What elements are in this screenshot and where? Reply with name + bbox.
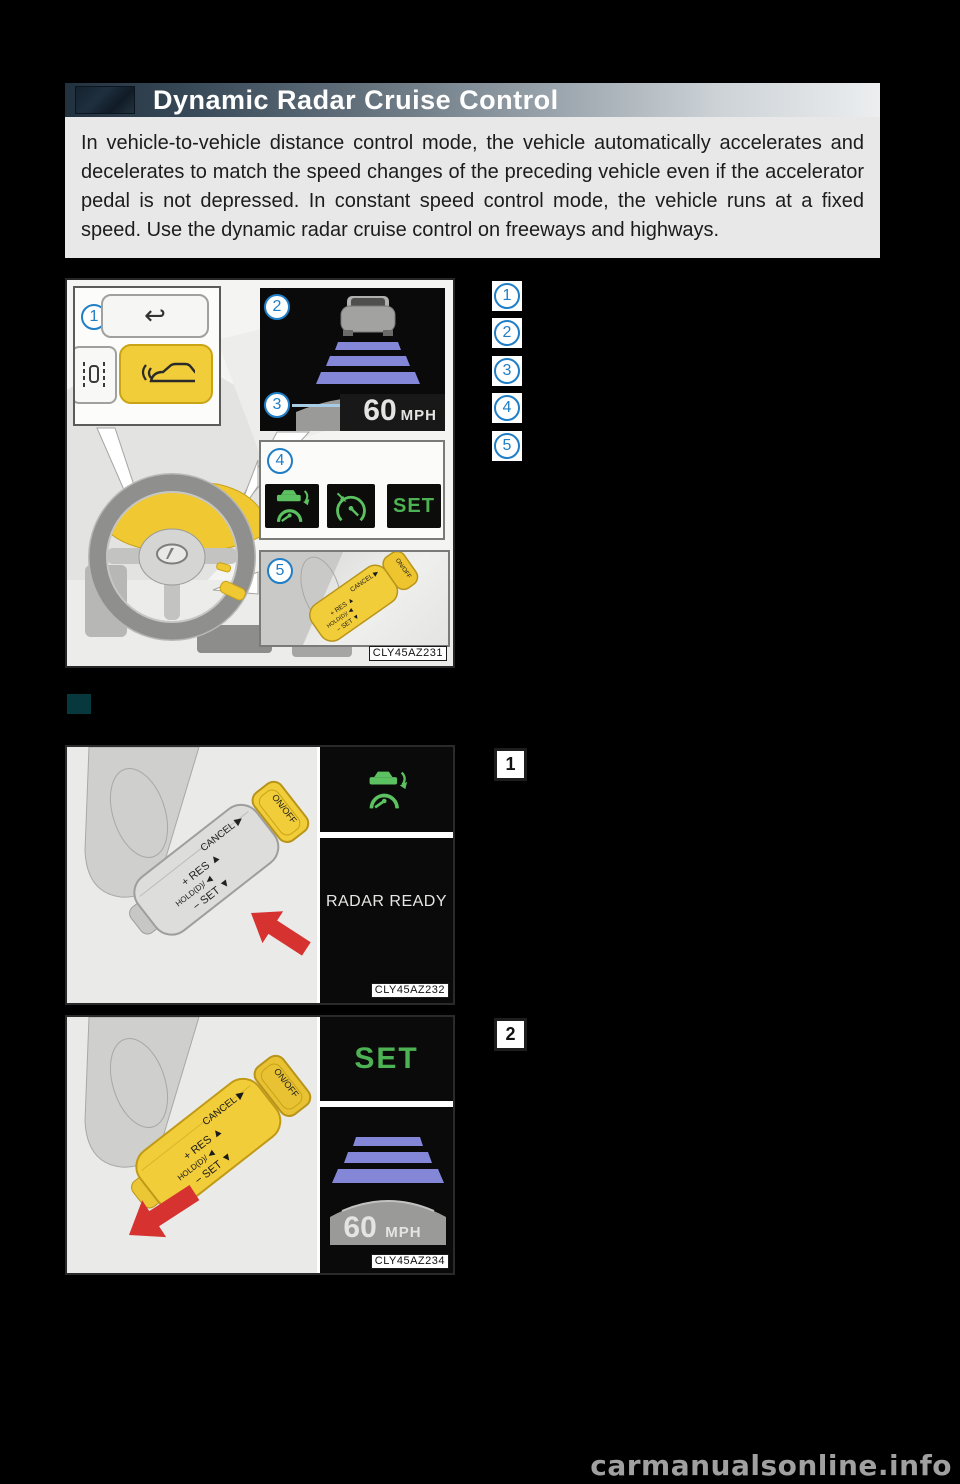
figure-tag: CLY45AZ231 bbox=[369, 646, 447, 661]
speed-value: 60 bbox=[343, 1211, 376, 1244]
speed-value: 60 bbox=[363, 394, 396, 428]
legend-callout-2: 2 bbox=[494, 320, 520, 346]
cruise-control-icon bbox=[332, 487, 370, 525]
intro-box: In vehicle-to-vehicle distance control m… bbox=[65, 117, 880, 258]
callout-4-circle: 4 bbox=[267, 448, 293, 474]
step2-display-panel: SET 60 MPH CLY45AZ234 bbox=[320, 1017, 453, 1273]
callout-5-circle: 5 bbox=[267, 558, 293, 584]
lane-assist-button bbox=[73, 346, 117, 404]
set-speed-readout: 60 MPH bbox=[340, 394, 445, 431]
step1-indicator-area bbox=[320, 747, 453, 832]
step2-set-area: SET bbox=[320, 1017, 453, 1101]
watermark-text: carmanualsonline.info bbox=[590, 1449, 952, 1482]
set-display-text: SET bbox=[354, 1042, 418, 1076]
callout-3-circle: 3 bbox=[264, 392, 290, 418]
stalk-inset-box: CANCEL ▶ + RES ▲ HOLD(D)/ ◀ − SET ▼ ON/O… bbox=[259, 550, 450, 647]
radar-ready-text: RADAR READY bbox=[320, 893, 453, 911]
inset-steering-switches: 1 ↩ bbox=[73, 286, 221, 426]
step2-distance-area: 60 MPH bbox=[320, 1107, 453, 1273]
panel-divider bbox=[320, 832, 453, 838]
figure-tag: CLY45AZ232 bbox=[371, 983, 449, 998]
cruise-indicator-tile bbox=[327, 484, 375, 528]
legend-callout-1: 1 bbox=[494, 283, 520, 309]
speed-unit: MPH bbox=[385, 1224, 421, 1241]
figure-tag: CLY45AZ234 bbox=[371, 1254, 449, 1269]
callout-2-circle: 2 bbox=[264, 294, 290, 320]
return-button: ↩ bbox=[101, 294, 209, 338]
distance-bars-icon bbox=[316, 342, 420, 384]
multi-information-display: 60 MPH 2 3 bbox=[260, 288, 445, 431]
stalk-press-illustration: CANCEL ▶ + RES ▲ HOLD(D)/ ◀ − SET ▼ ON/O… bbox=[67, 747, 317, 1003]
step2-number: 2 bbox=[494, 1018, 527, 1051]
legend-callout-4: 4 bbox=[494, 395, 520, 421]
figure-overview: 1 ↩ bbox=[65, 278, 455, 668]
section-title-bar: Dynamic Radar Cruise Control bbox=[65, 83, 880, 117]
manual-page: Dynamic Radar Cruise Control In vehicle-… bbox=[0, 0, 960, 1484]
radar-cruise-icon bbox=[361, 768, 413, 812]
step2-stalk-art: CANCEL ▶ + RES ▲ HOLD(D)/ ◀ − SET ▼ ON/O… bbox=[67, 1017, 320, 1273]
set-speed-readout: 60 MPH bbox=[320, 1211, 445, 1245]
set-indicator-label: SET bbox=[393, 495, 435, 518]
radar-cruise-indicator-tile bbox=[265, 484, 319, 528]
step1-display-panel: RADAR READY CLY45AZ232 bbox=[320, 747, 453, 1003]
page-title: Dynamic Radar Cruise Control bbox=[153, 87, 559, 114]
indicator-lamps-box: 4 bbox=[259, 440, 445, 540]
speed-unit: MPH bbox=[401, 407, 437, 424]
section-heading-marker bbox=[67, 694, 91, 714]
lane-departure-icon bbox=[81, 358, 107, 392]
lexus-logo bbox=[157, 545, 187, 564]
step1-number: 1 bbox=[494, 748, 527, 781]
vehicle-radar-button bbox=[119, 344, 213, 404]
preceding-vehicle-icon bbox=[341, 296, 395, 336]
legend-callout-5: 5 bbox=[494, 433, 520, 459]
car-radar-icon bbox=[137, 357, 195, 391]
set-indicator-tile: SET bbox=[387, 484, 441, 528]
radar-cruise-icon bbox=[269, 487, 315, 525]
distance-bars-icon bbox=[332, 1137, 444, 1183]
figure-step2: CANCEL ▶ + RES ▲ HOLD(D)/ ◀ − SET ▼ ON/O… bbox=[65, 1015, 455, 1275]
section-thumbnail-image bbox=[75, 86, 135, 114]
callout-3-leader-line bbox=[292, 404, 340, 407]
figure-step1: CANCEL ▶ + RES ▲ HOLD(D)/ ◀ − SET ▼ ON/O… bbox=[65, 745, 455, 1005]
return-arrow-icon: ↩ bbox=[144, 301, 166, 331]
step1-stalk-art: CANCEL ▶ + RES ▲ HOLD(D)/ ◀ − SET ▼ ON/O… bbox=[67, 747, 320, 1003]
stalk-push-down-illustration: CANCEL ▶ + RES ▲ HOLD(D)/ ◀ − SET ▼ ON/O… bbox=[67, 1017, 317, 1273]
legend-callout-3: 3 bbox=[494, 358, 520, 384]
intro-text: In vehicle-to-vehicle distance control m… bbox=[81, 129, 864, 245]
